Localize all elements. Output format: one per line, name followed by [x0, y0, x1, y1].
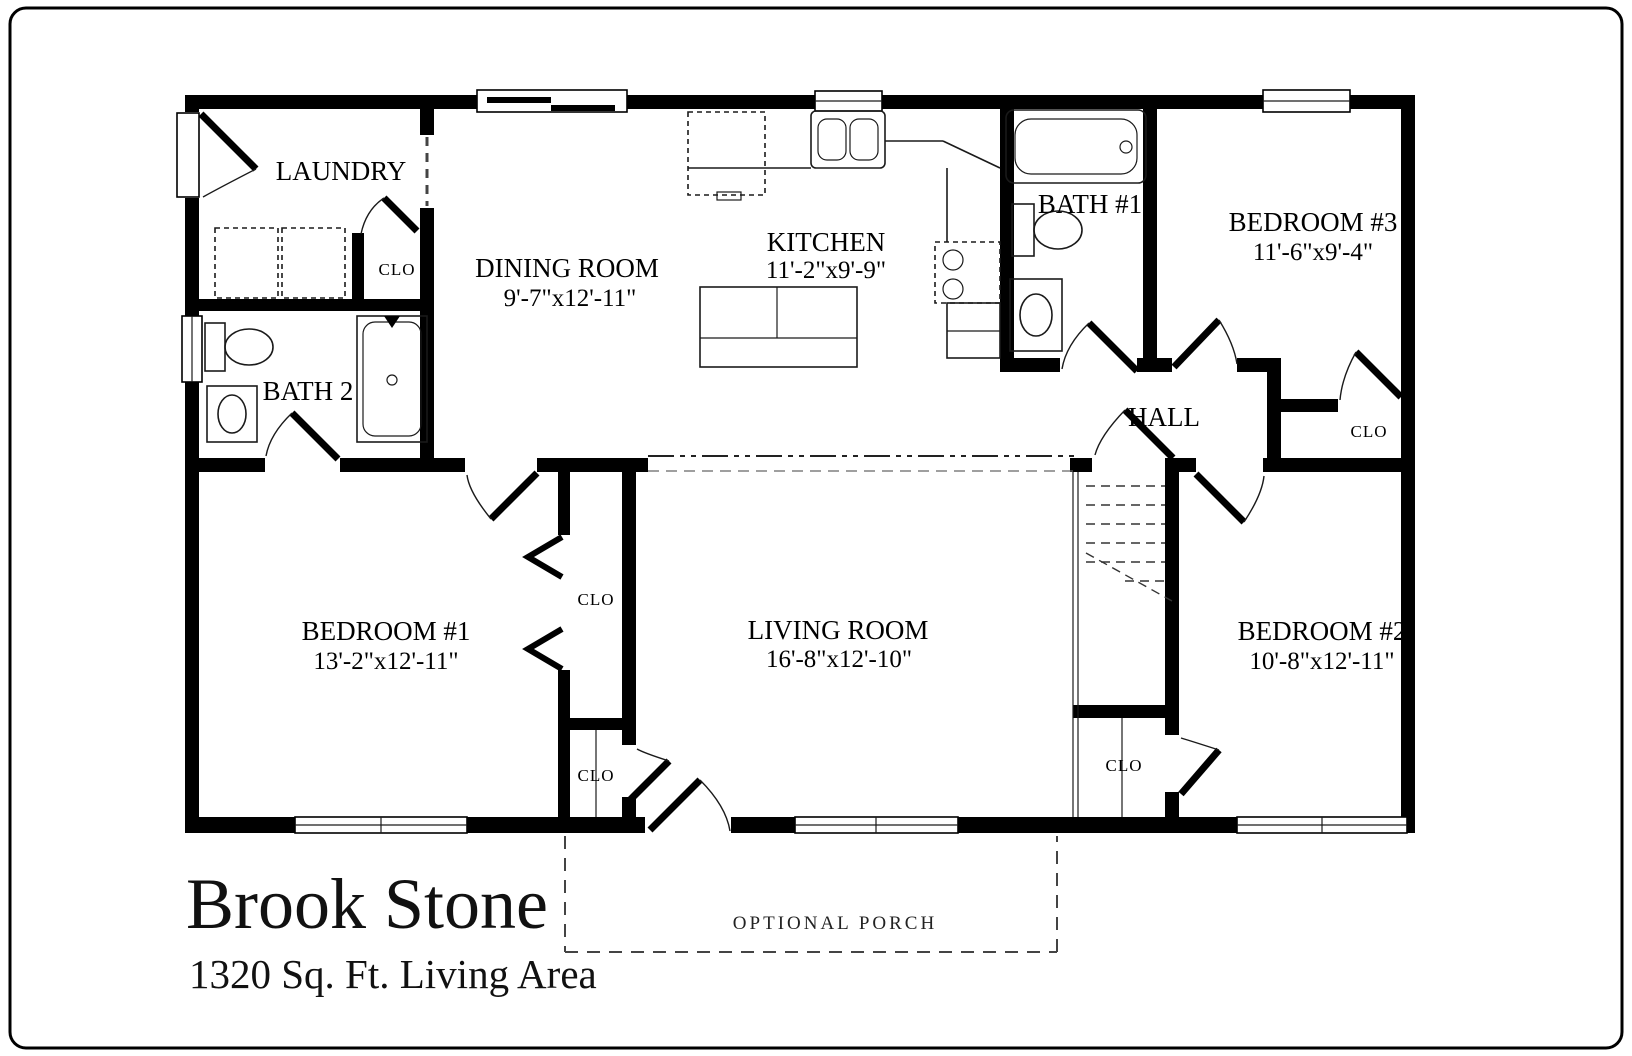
bedroom2-closet-label: CLO — [1106, 756, 1143, 775]
dining-window — [477, 90, 627, 112]
plan-title-block: Brook Stone 1320 Sq. Ft. Living Area — [186, 864, 597, 997]
floor-plan-page: LAUNDRY DINING ROOM 9'-7"x12'-11" KITCHE… — [0, 0, 1632, 1056]
bedroom1-window — [295, 817, 467, 833]
bedroom3-label: BEDROOM #3 — [1229, 207, 1398, 237]
bedroom1-closet-label: CLO — [578, 590, 615, 609]
bedroom3-window — [1263, 90, 1350, 112]
bedroom3-dims: 11'-6"x9'-4" — [1253, 239, 1373, 266]
dining-dims: 9'-7"x12'-11" — [504, 285, 637, 312]
kitchen-dims: 11'-2"x9'-9" — [766, 257, 886, 284]
living-dims: 16'-8"x12'-10" — [766, 646, 912, 673]
bath2-label: BATH 2 — [263, 376, 354, 406]
bedroom1-dims: 13'-2"x12'-11" — [313, 648, 458, 675]
plan-subtitle: 1320 Sq. Ft. Living Area — [189, 951, 597, 997]
bedroom2-dims: 10'-8"x12'-11" — [1249, 648, 1394, 675]
bedroom1-label: BEDROOM #1 — [302, 616, 471, 646]
laundry-label: LAUNDRY — [276, 156, 407, 186]
bath2-window — [182, 316, 202, 382]
bedroom3-closet-label: CLO — [1351, 422, 1388, 441]
porch-label: OPTIONAL PORCH — [733, 913, 937, 934]
living-window — [795, 817, 958, 833]
dining-label: DINING ROOM — [475, 253, 659, 283]
living-label: LIVING ROOM — [748, 615, 929, 645]
kitchen-window — [815, 91, 882, 111]
bath1-label: BATH #1 — [1038, 189, 1142, 219]
floor-plan-drawing: LAUNDRY DINING ROOM 9'-7"x12'-11" KITCHE… — [0, 0, 1632, 1056]
kitchen-label: KITCHEN — [767, 227, 885, 257]
hall-label: HALL — [1128, 402, 1200, 432]
laundry-closet-label: CLO — [379, 260, 416, 279]
coat-closet-label: CLO — [578, 766, 615, 785]
plan-title: Brook Stone — [186, 864, 548, 944]
bedroom2-window — [1237, 817, 1407, 833]
bedroom2-label: BEDROOM #2 — [1238, 616, 1407, 646]
